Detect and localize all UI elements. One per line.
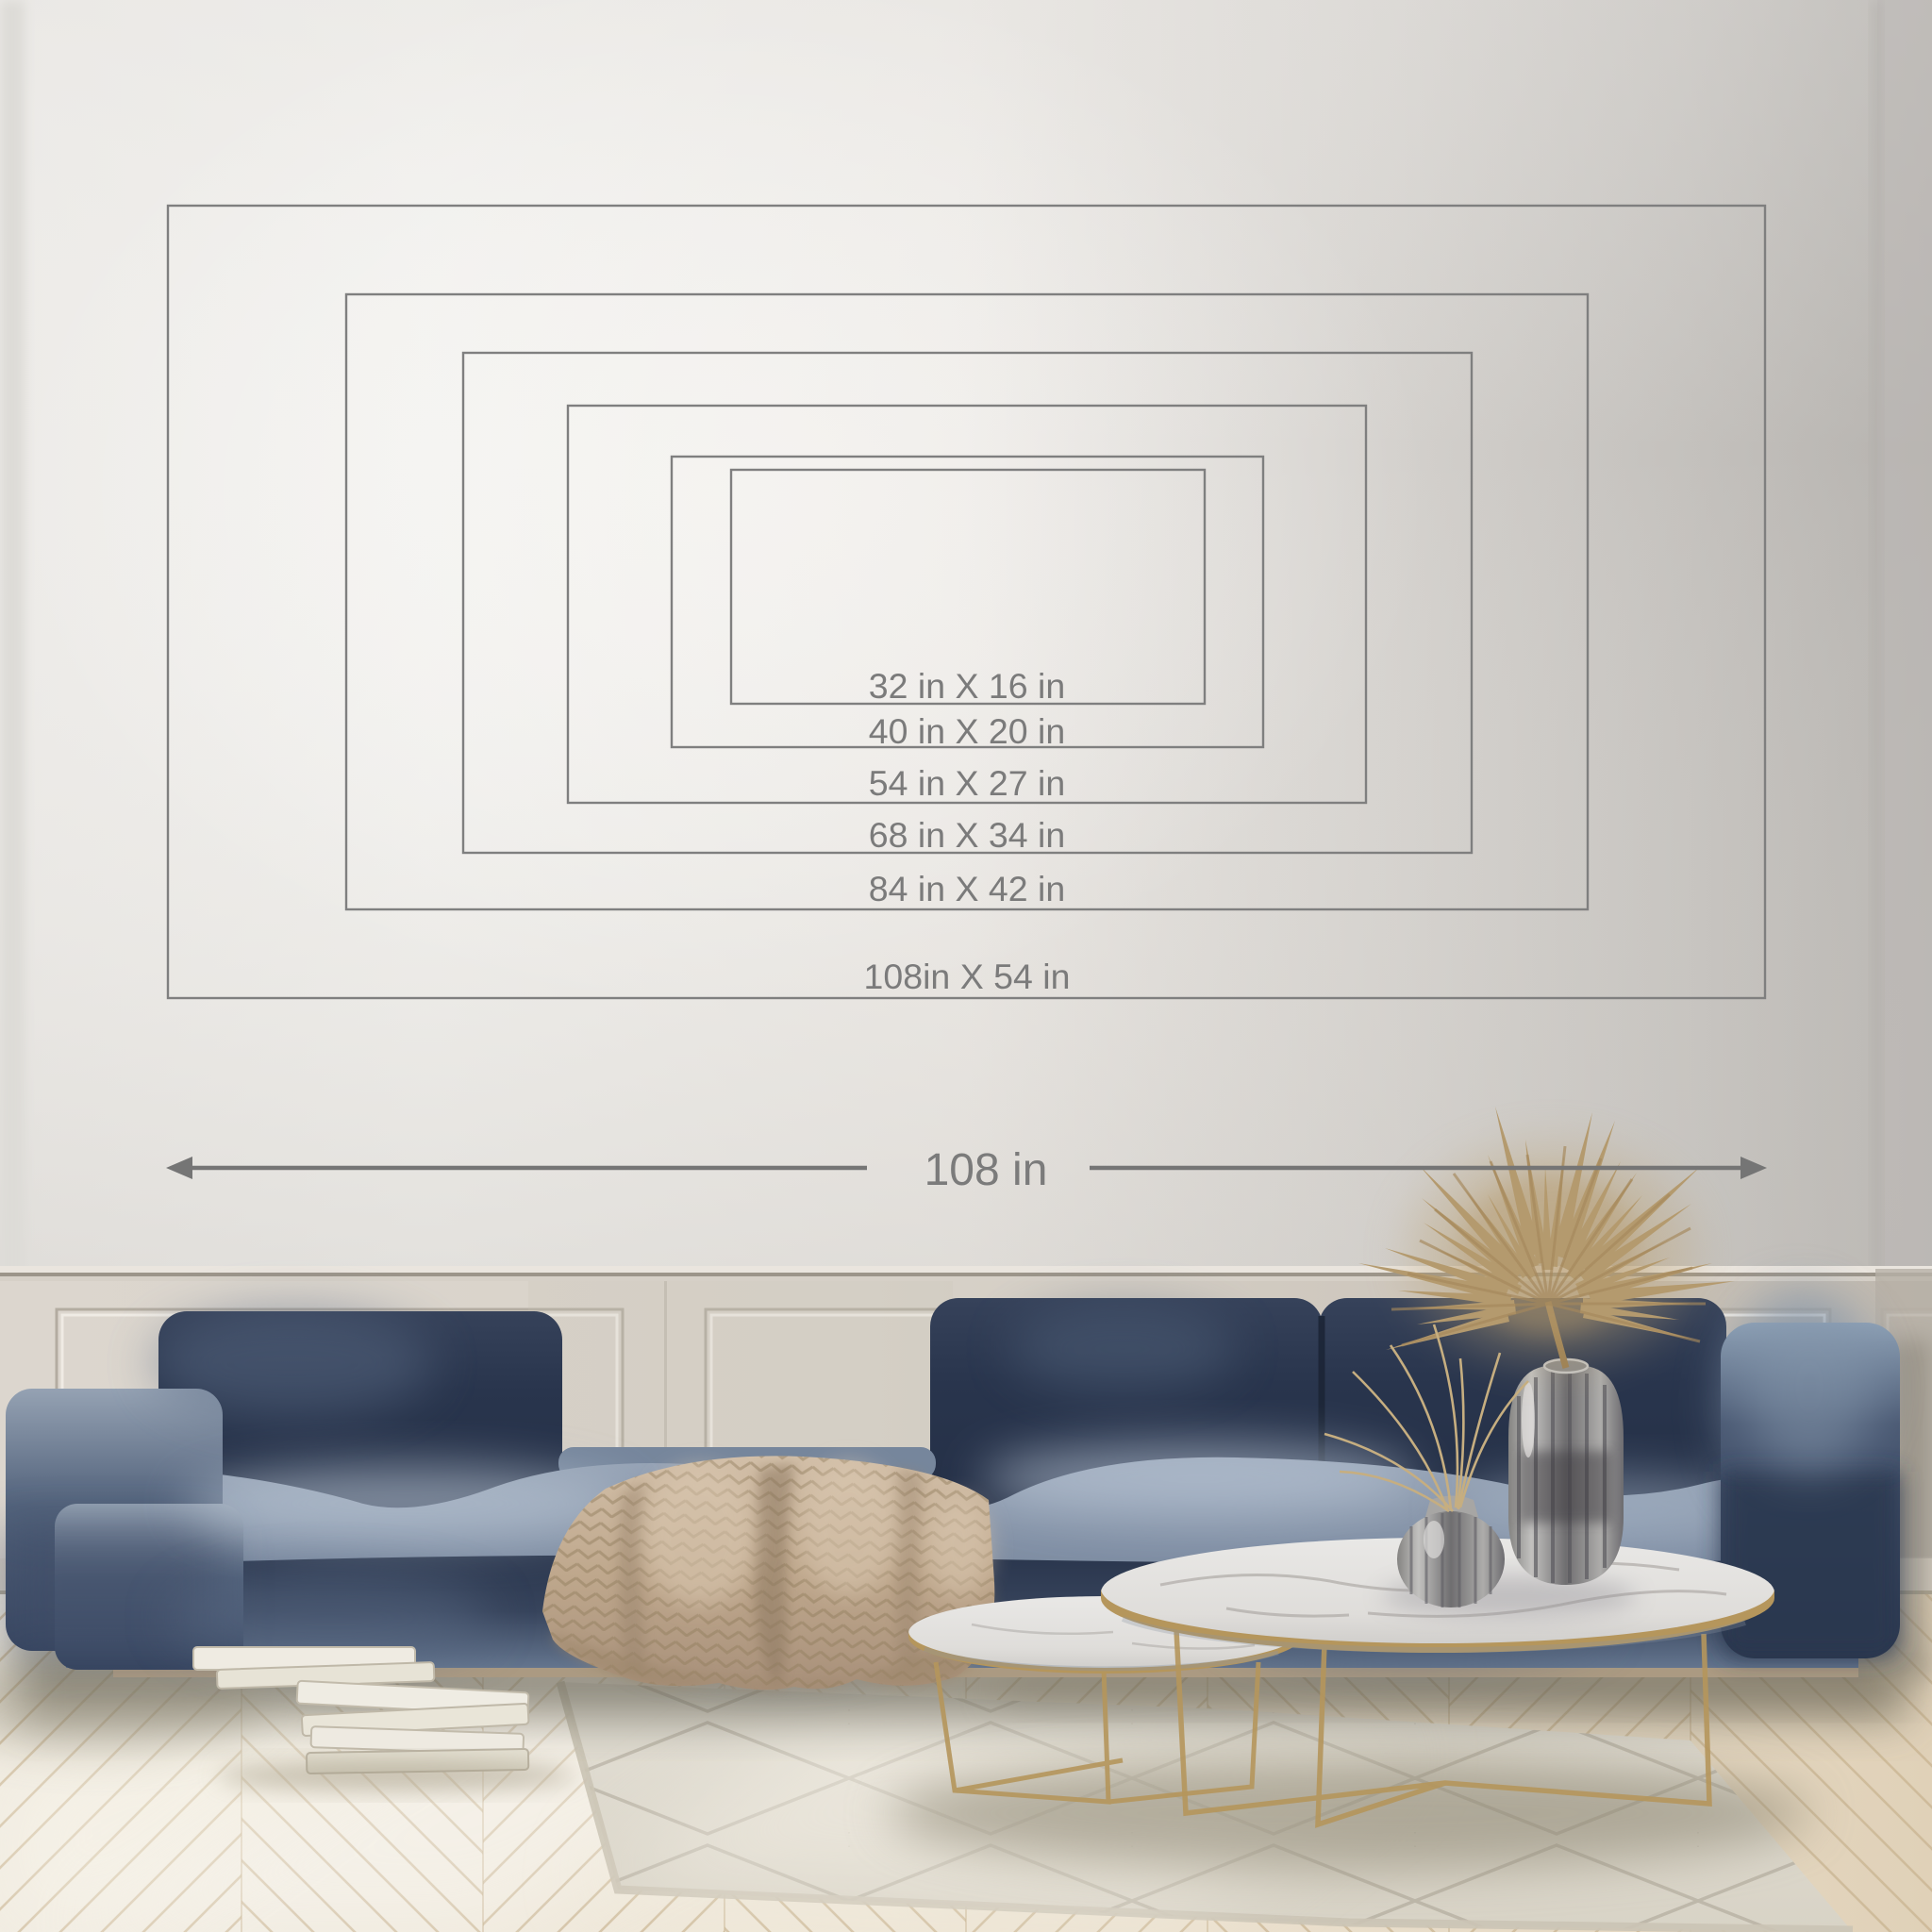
svg-text:32 in X 16 in: 32 in X 16 in xyxy=(869,666,1065,706)
svg-text:68 in X 34 in: 68 in X 34 in xyxy=(869,815,1065,855)
svg-text:108 in: 108 in xyxy=(924,1145,1048,1195)
svg-text:40 in X 20 in: 40 in X 20 in xyxy=(869,711,1065,751)
svg-text:54 in X 27 in: 54 in X 27 in xyxy=(869,763,1065,803)
svg-text:84 in X 42 in: 84 in X 42 in xyxy=(869,869,1065,908)
svg-text:108in X 54 in: 108in X 54 in xyxy=(864,957,1071,996)
